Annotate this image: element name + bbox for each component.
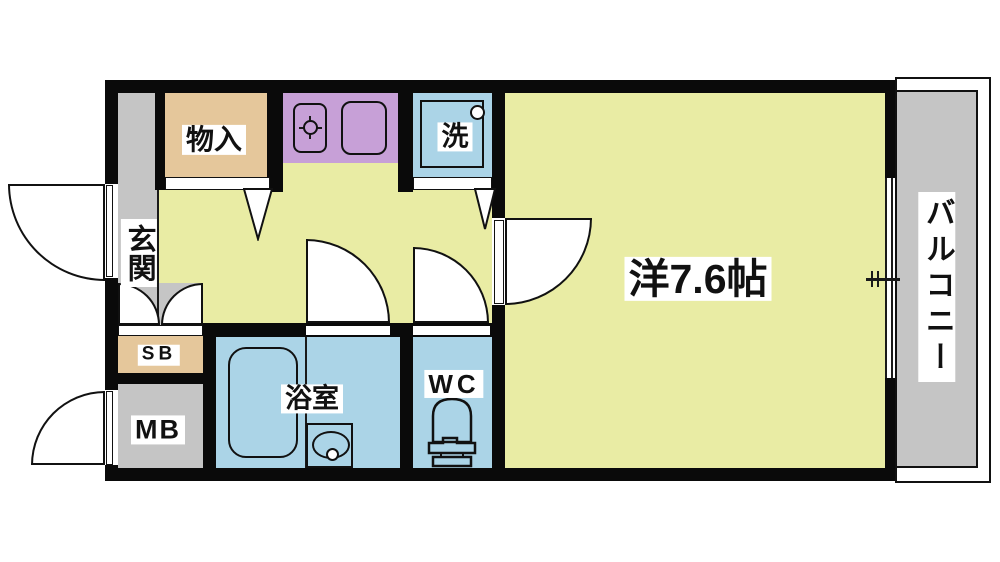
wall-sb-mb-divider: [118, 373, 203, 384]
main-room-door-panel: [494, 220, 504, 304]
shoebox-label: SB: [138, 345, 180, 366]
wall-right-upper: [885, 80, 895, 178]
wall-bottom: [105, 468, 895, 481]
wall-left-middle: [105, 278, 118, 390]
entrance-edge-line: [157, 190, 159, 323]
laundry-door-fold-icon: [474, 188, 497, 231]
meterbox-label: MB: [131, 415, 185, 444]
faucet-icon: [470, 105, 485, 120]
main-room-label: 洋7.6帖: [625, 257, 772, 301]
toilet-icon: [426, 396, 478, 468]
bathroom-door-sill: [306, 326, 390, 335]
storage-label: 物入: [182, 125, 246, 155]
meterbox-door-swing: [31, 391, 105, 465]
kitchen-sink-icon: [341, 101, 387, 155]
window-latch-tick-1: [871, 271, 873, 287]
wall-entrance-divider: [155, 80, 165, 190]
laundry-label: 洗: [438, 122, 473, 151]
wall-stub-kitchen-right: [398, 80, 413, 192]
wall-right-lower: [885, 378, 895, 481]
toilet-door-sill: [413, 326, 490, 335]
wall-bath-wc: [400, 337, 413, 468]
floorplan: 物入 洗 玄関 SB MB 浴室 WC 洋7.6帖 バルコニー: [0, 0, 1000, 562]
toilet-label: WC: [424, 370, 483, 398]
wall-stub-kitchen-left: [267, 80, 283, 192]
meterbox-door-panel: [106, 391, 113, 465]
entrance-door-swing: [8, 184, 105, 281]
balcony-label: バルコニー: [918, 192, 955, 382]
shoebox-door-sill: [118, 325, 203, 336]
window-latch-tick-2: [877, 271, 879, 287]
wall-sbcol-bathroom: [203, 337, 216, 468]
entrance-door-panel: [106, 185, 113, 277]
wall-left-lower: [105, 465, 118, 481]
vanity-drain-icon: [326, 448, 339, 461]
wall-left-upper: [105, 80, 118, 184]
storage-door-fold-icon: [243, 188, 273, 241]
bathroom-label: 浴室: [281, 384, 343, 413]
burner-icon: [303, 120, 318, 135]
entrance-label: 玄関: [121, 219, 157, 287]
